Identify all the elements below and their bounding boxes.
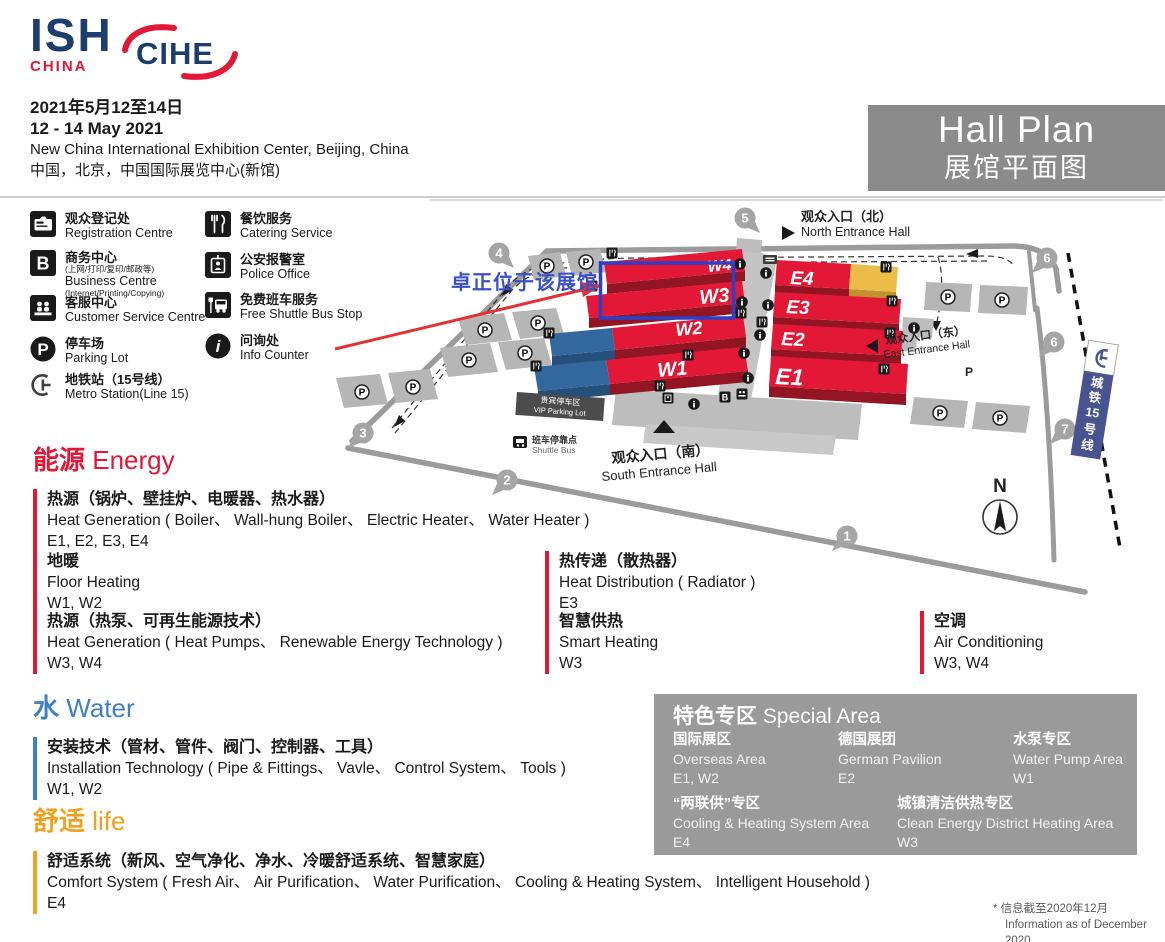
svg-text:B: B (37, 254, 50, 274)
hall-plan-page: ISH CHINA CIHE 2021年5月12至14日 12 - 14 May… (0, 0, 1165, 942)
venue-cn: 中国，北京，中国国际展览中心(新馆) (30, 160, 409, 181)
registration-icon (30, 211, 56, 237)
metro-line-label: 城 铁 15 号 线 (1071, 340, 1119, 459)
venue-en: New China International Exhibition Cente… (30, 139, 409, 160)
svg-text:P: P (466, 356, 473, 367)
svg-text:6: 6 (1050, 335, 1057, 350)
svg-text:P: P (937, 409, 944, 420)
legend-item-catering: 餐饮服务 Catering Service (205, 211, 332, 241)
svg-text:B: B (722, 393, 729, 403)
legend-item-customer-service: 客服中心 Customer Service Centre (30, 295, 205, 325)
svg-text:班车停靠点: 班车停靠点 (532, 434, 577, 445)
special-item-water-pump-area: 水泵专区 Water Pump Area W1 (1013, 731, 1123, 788)
legend-item-metro: 地铁站（15号线） Metro Station(Line 15) (30, 372, 189, 402)
legend-item-info: i 问询处 Info Counter (205, 333, 309, 363)
svg-text:15: 15 (1084, 405, 1100, 421)
section-heading-life: 舒适 life (33, 806, 126, 836)
svg-text:N: N (993, 476, 1007, 497)
annotation-text: 卓正位于该展馆 (451, 270, 598, 294)
gate-pin-4: 4 (489, 243, 515, 269)
north-entrance-arrow-icon (782, 226, 795, 240)
section-item-comfort-system: 舒适系统（新风、空气净化、净水、冷暖舒适系统、智慧家庭） Comfort Sys… (33, 851, 870, 914)
business-map-icon: B (720, 392, 731, 403)
hall-plan-title-box: Hall Plan 展馆平面图 (868, 105, 1165, 191)
section-heading-energy: 能源 Energy (33, 445, 175, 475)
section-item-floor-heating: 地暖 Floor Heating W1, W2 (33, 551, 140, 614)
svg-text:5: 5 (741, 211, 748, 226)
hall-plan-title-en: Hall Plan (868, 109, 1165, 151)
legend-item-business: B 商务中心 (上网/打印/复印/邮政等) Business Centre (I… (30, 250, 164, 298)
hall-label-e4: E4 (790, 268, 815, 290)
section-item-air-conditioning: 空调 Air Conditioning W3, W4 (920, 611, 1043, 674)
special-item-overseas-area: 国际展区 Overseas Area E1, W2 (673, 731, 766, 788)
svg-text:7: 7 (1061, 422, 1068, 437)
hall-label-e2: E2 (781, 329, 806, 351)
section-item-installation-technology: 安装技术（管材、管件、阀门、控制器、工具） Installation Techn… (33, 737, 566, 800)
svg-text:号: 号 (1082, 421, 1097, 438)
special-area-box: 特色专区 Special Area 国际展区 Overseas Area E1,… (654, 694, 1137, 855)
svg-text:4: 4 (495, 246, 503, 261)
gate-pin-5: 5 (735, 208, 761, 234)
svg-text:P: P (37, 340, 48, 359)
cihe-logo: CIHE (112, 20, 262, 84)
special-item-german-pavilion: 德国展团 German Pavilion E2 (838, 731, 942, 788)
legend-item-police: 公安报警室 Police Office (205, 252, 310, 282)
svg-text:P: P (999, 296, 1006, 307)
svg-text:P: P (359, 388, 366, 399)
special-area-heading: 特色专区 Special Area (673, 700, 881, 730)
shuttle-bus-stop: 班车停靠点 Shuttle Bus (513, 434, 577, 455)
svg-text:3: 3 (359, 426, 366, 441)
svg-text:P: P (945, 293, 952, 304)
compass: N (983, 476, 1017, 534)
hall-plan-title-cn: 展馆平面图 (868, 151, 1165, 185)
section-item-heat-generation-boiler: 热源（锅炉、壁挂炉、电暖器、热水器） Heat Generation ( Boi… (33, 489, 589, 552)
svg-text:6: 6 (1043, 251, 1050, 266)
section-item-heat-generation-pumps: 热源（热泵、可再生能源技术） Heat Generation ( Heat Pu… (33, 611, 503, 674)
police-icon (205, 252, 231, 278)
svg-text:North Entrance Hall: North Entrance Hall (801, 225, 910, 239)
section-item-heat-distribution: 热传递（散热器） Heat Distribution ( Radiator ) … (545, 551, 755, 614)
date-cn: 2021年5月12至14日 (30, 97, 409, 118)
svg-text:Shuttle Bus: Shuttle Bus (532, 445, 575, 455)
section-item-smart-heating: 智慧供热 Smart Heating W3 (545, 611, 658, 674)
svg-text:观众入口（北）: 观众入口（北） (801, 209, 892, 224)
date-en: 12 - 14 May 2021 (30, 118, 409, 139)
cihe-logo-text: CIHE (136, 36, 214, 71)
hall-label-e3: E3 (786, 297, 811, 319)
hall-label-w3: W3 (699, 284, 731, 309)
section-heading-water: 水 Water (33, 693, 135, 723)
event-dates-block: 2021年5月12至14日 12 - 14 May 2021 New China… (30, 97, 409, 181)
svg-text:P: P (482, 326, 489, 337)
svg-text:P: P (535, 319, 542, 330)
svg-text:P: P (522, 349, 529, 360)
hall-label-w2: W2 (675, 318, 704, 340)
special-item-clean-energy-area: 城镇清洁供热专区 Clean Energy District Heating A… (897, 795, 1113, 852)
gate-pin-7: 7 (1050, 419, 1076, 445)
svg-text:P: P (410, 383, 417, 394)
hall-label-w1: W1 (657, 357, 689, 382)
svg-text:P: P (997, 414, 1004, 425)
svg-text:2: 2 (503, 473, 510, 488)
customer-service-icon (30, 295, 56, 321)
hall-label-e1: E1 (775, 363, 804, 390)
info-icon: i (205, 333, 231, 359)
ish-china-logo: ISH CHINA (30, 12, 113, 74)
ish-logo-text: ISH (30, 12, 113, 58)
restaurant-block (763, 255, 777, 264)
parking-letter: P (965, 365, 973, 379)
shuttle-bus-icon (205, 292, 231, 318)
special-item-cooling-heating-area: “两联供”专区 Cooling & Heating System Area E4 (673, 795, 869, 852)
metro-icon (30, 372, 56, 398)
legend-item-parking: P 停车场 Parking Lot (30, 336, 128, 366)
road-east-upper (1029, 252, 1035, 310)
gate-pin-3: 3 (348, 423, 374, 449)
business-icon: B (30, 250, 56, 276)
svg-text:P: P (544, 262, 551, 273)
parking-icon: P (30, 336, 56, 362)
hall-label-w4: W4 (707, 257, 732, 276)
legend-item-registration: 观众登记处 Registration Centre (30, 211, 173, 241)
ish-logo-subtext: CHINA (30, 59, 113, 74)
north-entrance-label: 观众入口（北） North Entrance Hall (782, 209, 910, 240)
svg-text:1: 1 (843, 529, 850, 544)
svg-text:P: P (583, 258, 590, 269)
footnote: * 信息截至2020年12月 Information as of Decembe… (993, 901, 1165, 942)
catering-icon (205, 211, 231, 237)
